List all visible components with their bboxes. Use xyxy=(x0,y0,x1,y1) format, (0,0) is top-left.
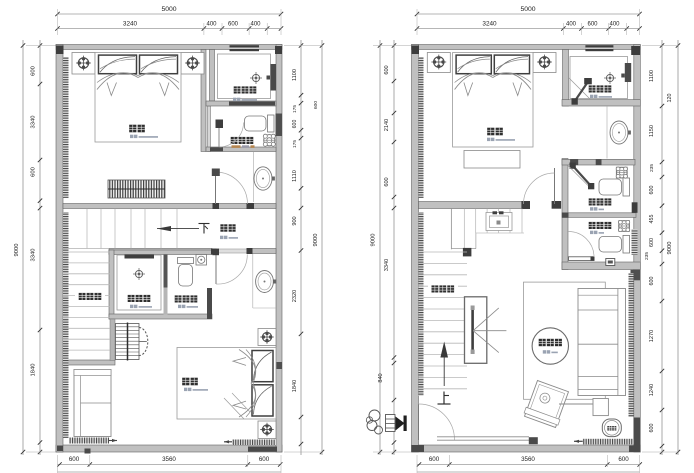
svg-text:600: 600 xyxy=(228,22,239,28)
svg-text:5000: 5000 xyxy=(520,6,535,13)
svg-text:600: 600 xyxy=(69,456,80,463)
svg-text:1110: 1110 xyxy=(292,170,298,182)
svg-text:600: 600 xyxy=(649,277,655,286)
svg-text:600: 600 xyxy=(31,66,37,76)
svg-text:3340: 3340 xyxy=(384,259,390,271)
svg-text:3240: 3240 xyxy=(482,21,497,28)
svg-text:600: 600 xyxy=(384,65,390,74)
svg-text:235: 235 xyxy=(649,164,655,172)
svg-text:2320: 2320 xyxy=(292,290,298,302)
svg-text:600: 600 xyxy=(649,186,655,195)
svg-text:1150: 1150 xyxy=(649,125,655,137)
svg-text:600: 600 xyxy=(429,456,440,463)
svg-text:600: 600 xyxy=(292,120,298,129)
svg-text:9000: 9000 xyxy=(313,234,319,247)
svg-text:175: 175 xyxy=(292,105,298,113)
svg-text:600: 600 xyxy=(649,424,655,433)
svg-text:840: 840 xyxy=(378,373,384,382)
svg-text:3340: 3340 xyxy=(31,116,37,129)
svg-text:9000: 9000 xyxy=(14,244,20,257)
svg-text:1240: 1240 xyxy=(649,384,655,396)
svg-text:5000: 5000 xyxy=(161,6,176,13)
svg-text:900: 900 xyxy=(292,216,298,225)
svg-text:2140: 2140 xyxy=(384,119,390,131)
svg-text:1100: 1100 xyxy=(292,69,298,81)
svg-text:1840: 1840 xyxy=(31,364,37,377)
svg-text:3560: 3560 xyxy=(162,456,176,463)
svg-text:235: 235 xyxy=(644,252,650,260)
svg-text:600: 600 xyxy=(31,167,37,177)
svg-text:120: 120 xyxy=(667,94,673,103)
svg-text:600: 600 xyxy=(384,177,390,186)
svg-text:1840: 1840 xyxy=(292,380,298,392)
svg-text:9000: 9000 xyxy=(371,234,377,247)
svg-text:600: 600 xyxy=(618,456,629,463)
svg-text:400: 400 xyxy=(609,22,620,28)
svg-text:400: 400 xyxy=(566,22,577,28)
svg-text:9000: 9000 xyxy=(667,242,673,255)
svg-text:400: 400 xyxy=(250,22,261,28)
svg-text:600: 600 xyxy=(649,238,655,247)
svg-text:600: 600 xyxy=(259,456,270,463)
svg-text:600: 600 xyxy=(313,101,319,109)
svg-text:3240: 3240 xyxy=(123,21,138,28)
svg-text:455: 455 xyxy=(649,215,655,224)
svg-text:1100: 1100 xyxy=(649,70,655,82)
svg-text:1270: 1270 xyxy=(649,330,655,342)
svg-text:600: 600 xyxy=(587,22,598,28)
svg-text:3560: 3560 xyxy=(521,456,535,463)
svg-text:175: 175 xyxy=(292,140,298,148)
svg-text:400: 400 xyxy=(206,22,217,28)
svg-text:3340: 3340 xyxy=(31,249,37,262)
